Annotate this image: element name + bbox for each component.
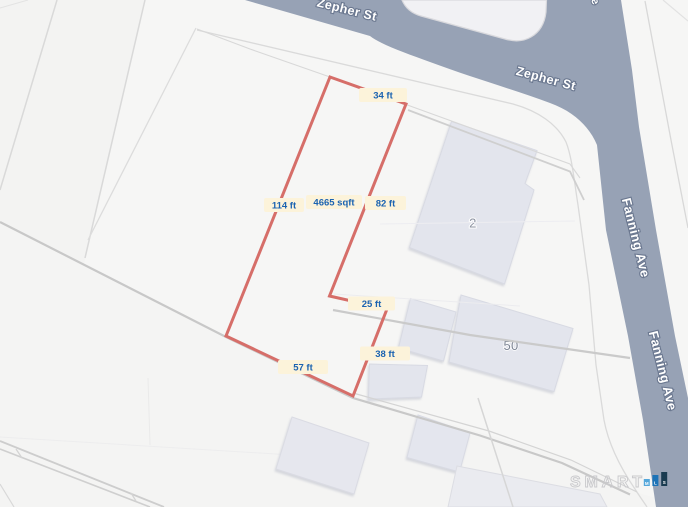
svg-text:SMART: SMART — [570, 474, 646, 491]
svg-text:34 ft: 34 ft — [373, 91, 393, 102]
svg-text:S: S — [663, 480, 666, 485]
svg-text:38 ft: 38 ft — [375, 349, 395, 360]
svg-text:4665 sqft: 4665 sqft — [313, 198, 355, 209]
svg-text:57 ft: 57 ft — [293, 363, 313, 374]
svg-text:M: M — [645, 481, 649, 486]
svg-text:25 ft: 25 ft — [362, 299, 382, 310]
svg-text:L: L — [654, 481, 657, 486]
svg-text:114 ft: 114 ft — [272, 201, 297, 212]
svg-text:82 ft: 82 ft — [376, 199, 396, 210]
